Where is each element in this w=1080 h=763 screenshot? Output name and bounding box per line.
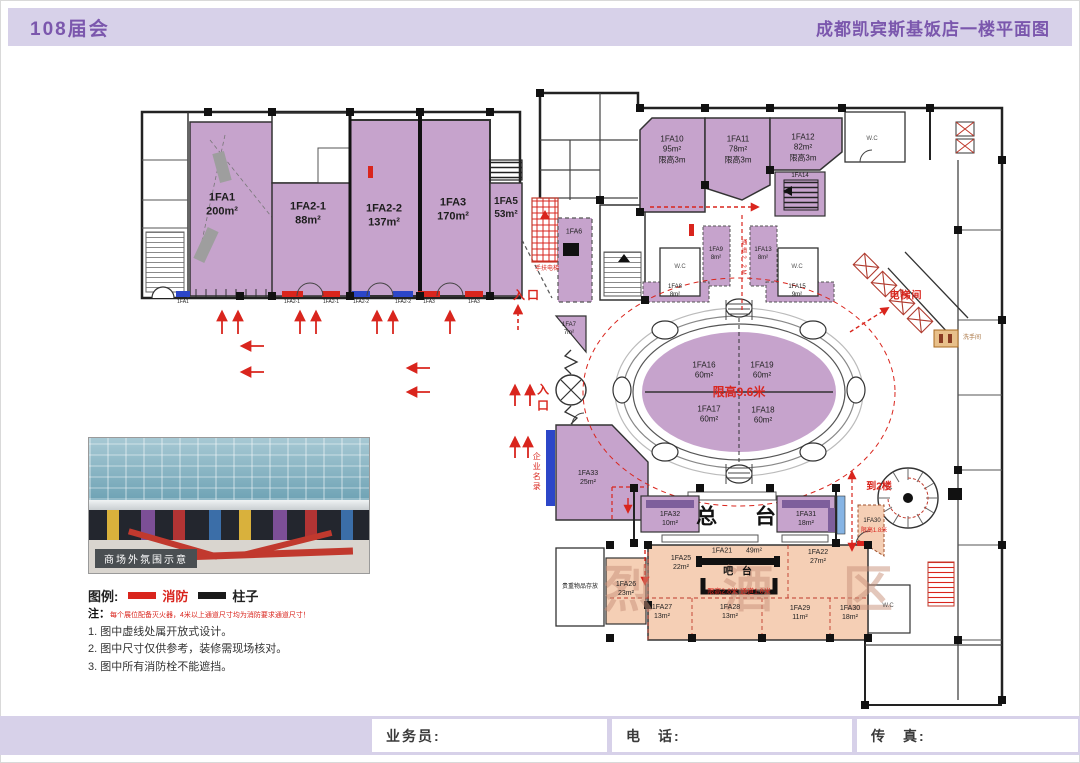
escalator-label: 手扶电梯 [535,266,559,274]
strip-label: 1FA2-2 [353,299,369,306]
room-label-1fa30b: 1FA30 [863,518,880,526]
room-label-1fa29: 1FA29 11m² [790,604,810,622]
legend-title: 图例: [88,586,118,605]
room-label-1fa14: 1FA14 [791,173,808,181]
room-label-1fa33: 1FA33 25m² [578,469,598,487]
room-label-1fa27: 1FA27 13m² [652,603,672,621]
elevator-hall-label: 电梯间 [890,290,923,303]
notes-red-note: 每个展位配备灭火器，4米以上通道尺寸均为消防要求通道尺寸！ [110,612,310,619]
bar-counter-label: 吧 台 [723,566,755,579]
room-label-1fa16: 1FA16 60m² [692,361,715,382]
notes-prefix: 注： [88,608,110,620]
footer-band: 业务员: 电 话: 传 真: [0,716,1080,755]
corridor-label: 通道2.2M [738,239,746,276]
oval-height-limit-label: 限高9.6米 [713,385,766,401]
room-label-1fa26: 1FA26 23m² [616,580,636,598]
room-label-1fa6: 1FA6 [566,227,582,236]
wc-label: W.C [866,136,877,144]
photo-caption: 商场外氛围示意 [95,549,197,568]
room-label-1fa22: 1FA22 27m² [808,548,828,566]
strip-label: 1FA2-1 [284,299,300,306]
fire-swatch [128,592,156,599]
room-label-1fa7: 1FA7 7m² [562,322,576,338]
entrance-label-mid: 入 口 [537,382,549,413]
strip-label: 1FA3 [423,299,435,306]
storefront-photo: 商场外氛围示意 [88,437,370,574]
valuables-label: 贵重物品存放 [562,584,598,592]
legend-pillar-label: 柱子 [232,586,258,605]
room-label-1fa3: 1FA3 170m² [437,196,469,225]
room-label-1fa5: 1FA5 53m² [494,195,518,221]
bar-height-limit-label: 限高2.8米 通道1.8米 [707,587,770,596]
room-label-1fa2-2: 1FA2-2 137m² [366,202,402,231]
room-label-1fa25: 1FA25 22m² [671,554,691,572]
note-2: 2. 图中尺寸仅供参考，装修需现场核对。 [88,641,310,659]
salesman-field[interactable]: 业务员: [372,719,607,752]
room-label-1fa30: 1FA30 18m² [840,604,860,622]
fax-field[interactable]: 传 真: [857,719,1078,752]
room-label-1fa10: 1FA10 95m² 限高3m [658,134,685,165]
legend-fire-label: 消防 [162,586,188,605]
salesman-label: 业务员: [386,726,441,746]
room-label-1fa21-area: 49m² [746,546,762,555]
strip-label: 1FA2-2 [395,299,411,306]
room-label-1fa30b-note: 限高1.8米 [861,528,887,536]
room-label-1fa18: 1FA18 60m² [751,406,774,427]
pillar-swatch [198,592,226,599]
to-2f-label: 到2楼 [866,481,892,494]
room-label-1fa15: 1FA15 9m² [788,284,805,300]
wc-label: W.C [674,264,685,272]
room-label-1fa2-1: 1FA2-1 88m² [290,200,326,229]
notes: 注：每个展位配备灭火器，4米以上通道尺寸均为消防要求通道尺寸！ 1. 图中虚线处… [88,606,310,676]
company-directory-label: 企业名录 [531,452,541,492]
room-label-1fa28: 1FA28 13m² [720,603,740,621]
front-desk-label: 总 台 [696,503,792,530]
room-label-1fa11: 1FA11 78m² 限高3m [724,134,751,165]
restroom-sign-label: 洗手间 [963,335,981,343]
fax-label: 传 真: [871,726,926,746]
room-label-1fa1: 1FA1 200m² [206,191,238,220]
strip-label: 1FA2-1 [323,299,339,306]
left-wing [142,112,552,298]
room-label-1fa17: 1FA17 60m² [697,405,720,426]
room-label-1fa12: 1FA12 82m² 限高3m [789,132,816,163]
room-label-1fa9: 1FA9 8m² [709,247,723,263]
wc-label: W.C [882,603,893,611]
phone-label: 电 话: [626,726,681,746]
room-label-1fa8: 1FA8 8m² [668,284,682,300]
photo-glass-facade [89,438,369,500]
room-label-1fa21: 1FA21 [712,546,732,555]
note-3: 3. 图中所有消防栓不能遮挡。 [88,659,310,677]
room-label-1fa19: 1FA19 60m² [750,361,773,382]
room-label-1fa32: 1FA32 10m² [660,510,680,528]
wc-label: W.C [791,264,802,272]
room-label-1fa31: 1FA31 18m² [796,510,816,528]
page: 108届会 成都凯宾斯基饭店一楼平面图 [0,0,1080,763]
photo-canopy [89,500,369,510]
entrance-label-top: 入口 [513,288,541,304]
legend: 图例: 消防 柱子 [88,586,258,605]
strip-label: 1FA3 [468,299,480,306]
room-label-1fa13: 1FA13 8m² [754,247,771,263]
note-1: 1. 图中虚线处属开放式设计。 [88,624,310,642]
phone-field[interactable]: 电 话: [612,719,852,752]
strip-label: 1FA1 [177,299,189,306]
